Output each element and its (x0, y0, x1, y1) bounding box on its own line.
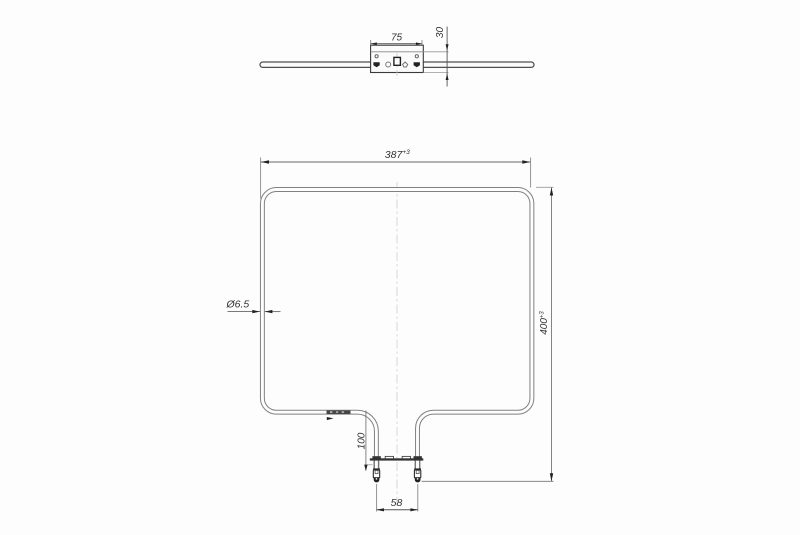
svg-text:100: 100 (357, 432, 368, 449)
svg-text:Ø6.5: Ø6.5 (226, 299, 250, 311)
svg-text:30: 30 (435, 27, 446, 39)
svg-text:75: 75 (391, 32, 403, 43)
svg-text:58: 58 (391, 497, 403, 509)
